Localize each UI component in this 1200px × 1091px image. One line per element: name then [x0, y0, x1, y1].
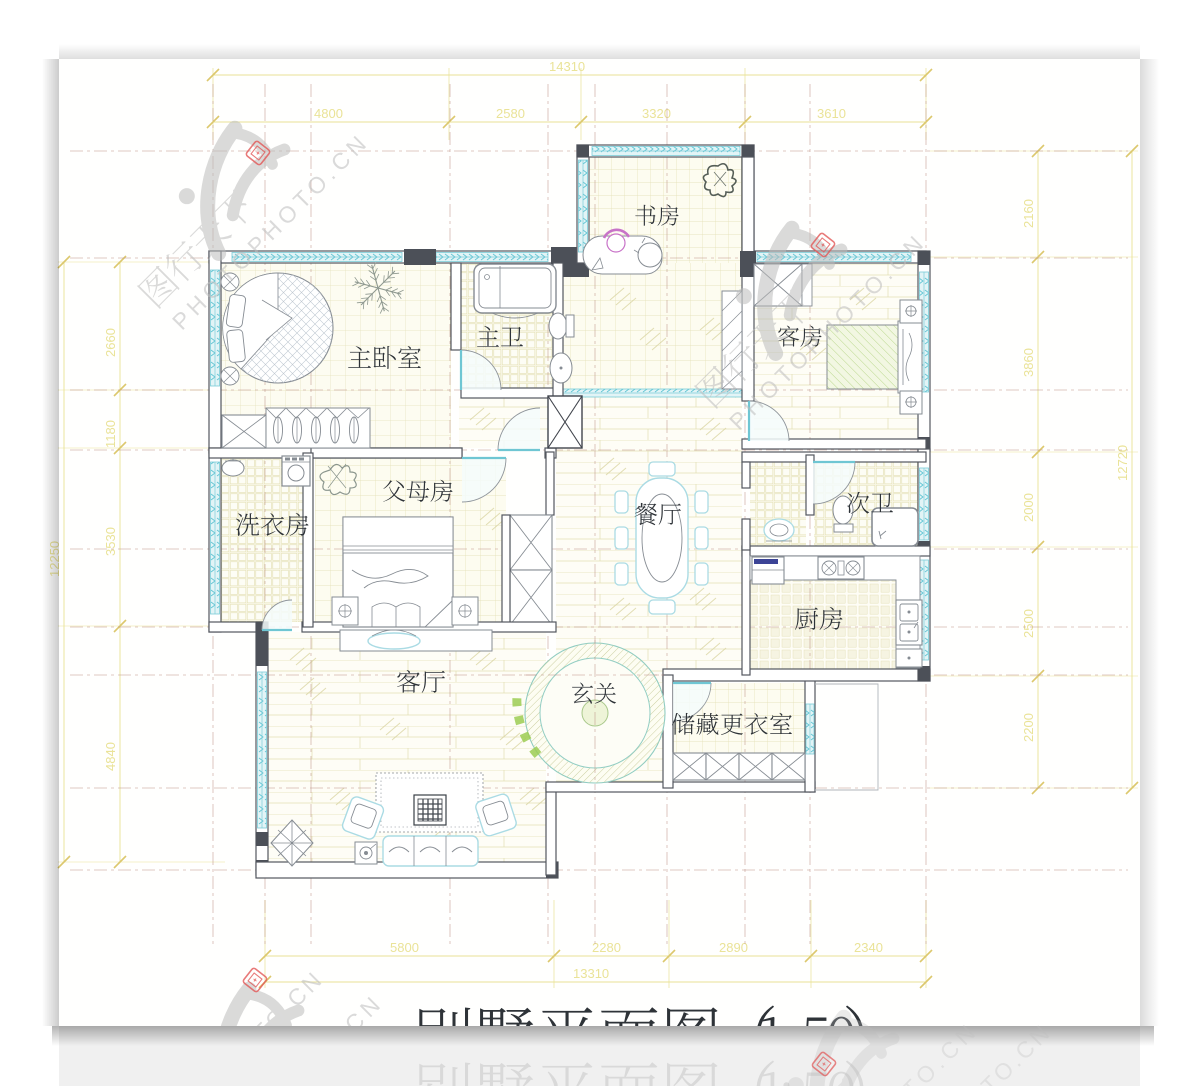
- svg-text:2280: 2280: [592, 940, 621, 955]
- svg-text:14310: 14310: [549, 59, 585, 74]
- svg-text:2160: 2160: [1021, 199, 1036, 228]
- svg-text:2340: 2340: [854, 940, 883, 955]
- svg-text:2000: 2000: [1021, 493, 1036, 522]
- svg-text:2890: 2890: [719, 940, 748, 955]
- svg-text:4800: 4800: [314, 106, 343, 121]
- svg-text:3610: 3610: [817, 106, 846, 121]
- svg-text:2580: 2580: [496, 106, 525, 121]
- svg-text:2660: 2660: [103, 328, 118, 357]
- svg-text:2500: 2500: [1021, 609, 1036, 638]
- svg-text:4840: 4840: [103, 742, 118, 771]
- svg-text:3530: 3530: [103, 527, 118, 556]
- svg-text:3860: 3860: [1021, 348, 1036, 377]
- svg-text:1180: 1180: [103, 420, 118, 448]
- svg-text:13310: 13310: [573, 966, 609, 981]
- svg-text:5800: 5800: [390, 940, 419, 955]
- svg-text:3320: 3320: [642, 106, 671, 121]
- svg-text:2200: 2200: [1021, 713, 1036, 742]
